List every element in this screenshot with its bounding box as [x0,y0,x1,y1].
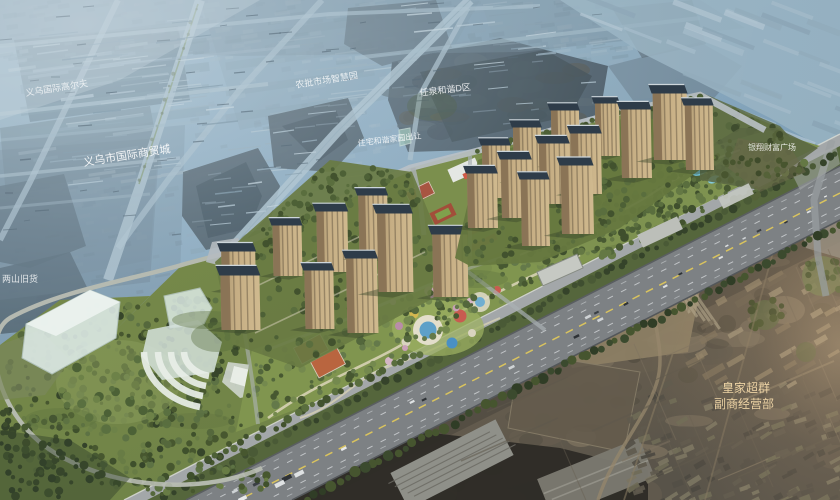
svg-text:副商经营部: 副商经营部 [714,396,774,411]
svg-text:银翔财富广场: 银翔财富广场 [748,142,796,152]
svg-text:两山旧货: 两山旧货 [2,273,38,284]
svg-text:皇家超群: 皇家超群 [722,380,770,395]
